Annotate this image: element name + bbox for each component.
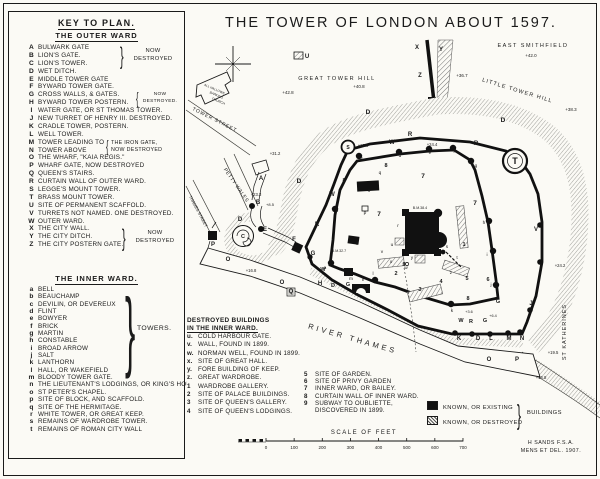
- scale-tick-label: 300: [347, 445, 355, 450]
- st-katherines-label: ST KATHERINES: [562, 304, 568, 360]
- map-label: +31.2: [270, 151, 281, 156]
- key-label: TURRETS NOT NAMED. ONE DESTROYED.: [38, 210, 174, 217]
- key-row: mBLOODY TOWER GATE.: [9, 374, 184, 381]
- destroyed-heading-1: DESTROYED BUILDINGS: [187, 317, 305, 325]
- key-label: BELL: [38, 286, 54, 293]
- key-letter: V: [25, 210, 38, 218]
- scale-tick-label: 200: [319, 445, 327, 450]
- key-row: kLANTHORN: [9, 359, 184, 366]
- brace-towers: }: [125, 286, 135, 374]
- key-row: v.WALL, FOUND IN 1899.: [187, 341, 305, 349]
- map-label: d: [399, 153, 402, 159]
- key-row: jSALT: [9, 352, 184, 359]
- key-row: sREMAINS OF WARDROBE TOWER.: [9, 418, 184, 425]
- map-label: 9: [402, 262, 405, 268]
- east-smithfield-label: EAST SMITHFIELD: [498, 43, 569, 49]
- map-label: m: [349, 277, 353, 282]
- key-label: BLOODY TOWER GATE.: [38, 374, 113, 381]
- key-label: BRICK: [38, 323, 58, 330]
- map-label: D: [297, 178, 302, 185]
- key-letter: a: [25, 286, 38, 293]
- map-label: K: [457, 336, 462, 342]
- map-label: L: [489, 336, 493, 342]
- destroyed-heading-2: IN THE INNER WARD.: [187, 325, 305, 333]
- map-label: 3: [418, 287, 421, 293]
- key-letter: f: [25, 323, 38, 330]
- brace-abc-note: NOWDESTROYED: [129, 48, 177, 63]
- brace-abc: }: [120, 44, 124, 68]
- map-label: +3.6: [465, 310, 473, 314]
- key-label: WET DITCH.: [38, 68, 77, 75]
- map-label: G: [483, 318, 487, 324]
- map-title: THE TOWER OF LONDON ABOUT 1597.: [225, 15, 557, 31]
- key-label: DEVILIN, OR DEVEREUX: [38, 301, 116, 308]
- map-label: 8: [342, 178, 345, 184]
- map-label: 1: [462, 242, 465, 248]
- map-label: +42.8: [282, 90, 294, 95]
- key-label: THE CITY POSTERN GATE.: [38, 241, 123, 248]
- key-label: REMAINS OF WARDROBE TOWER.: [38, 418, 148, 425]
- key-label: SITE OF BLOCK, AND SCAFFOLD.: [38, 396, 145, 403]
- map-label: B.M.32.7: [332, 249, 346, 253]
- key-row: y.FORE BUILDING OF KEEP.: [187, 366, 305, 374]
- city-wall: [427, 40, 434, 102]
- map-label: +36.7: [456, 73, 468, 78]
- key-label: CONSTABLE: [38, 337, 77, 344]
- key-letter: e: [25, 315, 38, 322]
- map-label: G: [496, 299, 500, 305]
- map-label: X: [415, 45, 419, 51]
- key-row: lHALL, OR WAKEFIELD: [9, 367, 184, 374]
- key-label: THE LIEUTENANT'S LODGINGS, OR KING'S HOU…: [38, 381, 200, 388]
- map-label: 8: [466, 296, 469, 302]
- petty-wales-label: PETTY WALES: [222, 167, 250, 204]
- key-letter: W: [25, 218, 38, 226]
- brace-mn: {: [106, 139, 109, 156]
- key-row: WOUTER WARD.: [9, 218, 184, 226]
- key-label: LANTHORN: [38, 359, 74, 366]
- map-label: 2: [394, 271, 397, 277]
- signature: H SANDS F.S.A. MENS ET DEL. 1907.: [503, 439, 599, 455]
- scale-tick-label: 500: [403, 445, 411, 450]
- key-label: THE CITY WALL.: [38, 225, 90, 232]
- key-letter: D: [25, 68, 38, 76]
- key-label: HALL, OR WAKEFIELD: [38, 367, 108, 374]
- map-label: W: [458, 318, 464, 324]
- key-letter: X: [25, 225, 38, 233]
- key-row: bBEAUCHAMP: [9, 293, 184, 300]
- key-label: REMAINS OF ROMAN CITY WALL: [38, 426, 142, 433]
- map-label: 7: [421, 173, 425, 180]
- map-label: 8: [384, 163, 387, 169]
- key-letter: s: [25, 418, 38, 425]
- key-letter: C: [25, 60, 38, 68]
- key-letter: T: [25, 194, 38, 202]
- map-label: O: [487, 357, 492, 363]
- key-label: BYWARD TOWER GATE.: [38, 83, 114, 90]
- key-letter: r: [25, 411, 38, 418]
- map-label: O: [280, 280, 285, 286]
- key-label: LEGGE'S MOUNT TOWER.: [38, 186, 121, 193]
- byward-gate: [291, 242, 303, 254]
- map-label: b: [336, 208, 339, 214]
- key-row: KCRADLE TOWER, POSTERN.: [9, 123, 184, 131]
- key-label: WATER GATE, OR ST THOMAS TOWER.: [38, 107, 163, 114]
- key-letter: 7: [304, 385, 315, 392]
- key-row: EMIDDLE TOWER GATE: [9, 76, 184, 84]
- key-label: LION'S TOWER.: [38, 60, 87, 67]
- key-label: SALT: [38, 352, 54, 359]
- key-letter: N: [25, 147, 38, 155]
- key-row: USITE OF PERMANENT SCAFFOLD.: [9, 202, 184, 210]
- key-label: NEW TURRET OF HENRY III. DESTROYED.: [38, 115, 172, 122]
- scale-tick-label: 600: [431, 445, 439, 450]
- key-label: LION'S GATE.: [38, 52, 81, 59]
- key-row: LWELL TOWER.: [9, 131, 184, 139]
- map-label: D: [366, 109, 371, 116]
- map-label: j: [489, 282, 491, 288]
- thames-street-label: THAMES STREET: [188, 195, 209, 229]
- map-label: o: [368, 189, 371, 194]
- map-label: 7: [473, 200, 477, 207]
- brace-xyz-note: NOWDESTROYED: [131, 230, 179, 245]
- map-label: R: [315, 222, 320, 228]
- key-letter: o: [25, 389, 38, 396]
- key-letter: U: [25, 202, 38, 210]
- key-row: 8CURTAIN WALL OF INNER WARD.: [304, 393, 454, 400]
- key-letter: Z: [25, 241, 38, 249]
- key-row: pSITE OF BLOCK, AND SCAFFOLD.: [9, 396, 184, 403]
- key-letter: K: [25, 123, 38, 131]
- map-label: h: [483, 220, 486, 226]
- key-label: THE WHARF, "KAIA REGIS.": [38, 154, 125, 161]
- key-row: x.SITE OF GREAT HALL.: [187, 358, 305, 366]
- key-label: COLD HARBOUR GATE.: [198, 333, 271, 340]
- key-row: TBRASS MOUNT TOWER.: [9, 194, 184, 202]
- key-label: INNER WARD, OR BAILEY.: [315, 385, 396, 392]
- key-label: WALL, FOUND IN 1899.: [198, 341, 269, 348]
- key-row: w.NORMAN WELL, FOUND IN 1899.: [187, 350, 305, 358]
- key-letter: b: [25, 293, 38, 300]
- map-label: +16.8: [246, 268, 257, 273]
- key-label: SUBWAY TO OUBLIETTE,: [315, 400, 393, 407]
- inner-ward-list: aBELLbBEAUCHAMPcDEVILIN, OR DEVEREUXdFLI…: [9, 286, 184, 433]
- key-letter: m: [25, 374, 38, 381]
- key-row: 6SITE OF PRIVY GARDEN: [304, 378, 454, 385]
- key-row: qSITE OF THE HERMITAGE.: [9, 404, 184, 411]
- key-letter: h: [25, 337, 38, 344]
- key-row: RCURTAIN WALL OF OUTER WARD.: [9, 178, 184, 186]
- map-label: g: [475, 164, 478, 169]
- key-letter: z.: [187, 374, 198, 382]
- key-row: SLEGGE'S MOUNT TOWER.: [9, 186, 184, 194]
- key-label: MIDDLE TOWER GATE: [38, 76, 109, 83]
- key-letter: d: [25, 308, 38, 315]
- key-letter: q: [25, 404, 38, 411]
- map-label: D: [476, 336, 481, 342]
- key-row: OTHE WHARF, "KAIA REGIS.": [9, 154, 184, 162]
- map-label: a: [324, 266, 327, 271]
- key-row: FBYWARD TOWER GATE.: [9, 83, 184, 91]
- scale-tick-label: 100: [290, 445, 298, 450]
- key-row: PWHARF GATE, NOW DESTROYED: [9, 162, 184, 170]
- map-label: +8.5: [266, 202, 275, 207]
- outer-ward-heading: THE OUTER WARD: [9, 31, 184, 42]
- key-row: tREMAINS OF ROMAN CITY WALL: [9, 426, 184, 433]
- key-letter: H: [25, 99, 38, 107]
- map-label: Y: [439, 47, 443, 53]
- key-label: NORMAN WELL, FOUND IN 1899.: [198, 350, 300, 357]
- key-letter: n: [25, 381, 38, 388]
- map-label: i: [486, 252, 487, 258]
- map-label: Z: [418, 73, 422, 79]
- map-label: l: [372, 271, 373, 277]
- destroyed-buildings-list-1: DESTROYED BUILDINGS IN THE INNER WARD. u…: [187, 317, 305, 416]
- key-panel: KEY TO PLAN. THE OUTER WARD ABULWARK GAT…: [8, 11, 185, 459]
- map-label: q: [379, 171, 382, 176]
- key-letter: w.: [187, 350, 198, 358]
- key-label: SITE OF QUEEN'S LODGINGS.: [198, 408, 292, 415]
- map-label: +16.8: [536, 375, 547, 380]
- key-label: BOWYER: [38, 315, 67, 322]
- key-label: FORE BUILDING OF KEEP.: [198, 366, 280, 373]
- legend-buildings-label: BUILDINGS: [527, 410, 562, 416]
- scale-tick-label: 0: [265, 445, 268, 450]
- map-label: +19.5: [548, 350, 559, 355]
- key-letter: B: [25, 52, 38, 60]
- map-label: n: [356, 242, 359, 247]
- map-label: p: [364, 211, 367, 216]
- legend-existing-label: KNOWN, OR EXISTING: [443, 405, 513, 411]
- key-row: nTHE LIEUTENANT'S LODGINGS, OR KING'S HO…: [9, 381, 184, 388]
- wharf-gate: [208, 231, 217, 240]
- map-label: 5: [465, 276, 468, 282]
- key-row: DWET DITCH.: [9, 68, 184, 76]
- water-gate: [352, 284, 370, 293]
- map-label: D: [501, 117, 506, 124]
- key-label: QUEEN'S STAIRS.: [38, 170, 95, 177]
- key-label: SITE OF GARDEN.: [315, 371, 372, 378]
- scale-tick-label: 700: [459, 445, 467, 450]
- tower-of-london-plan-page: SCALE OF FEET0100200300400500600700 THE …: [0, 0, 600, 479]
- key-row: hCONSTABLE: [9, 337, 184, 344]
- key-letter: 3: [187, 399, 198, 407]
- key-letter: p: [25, 396, 38, 403]
- key-letter: v.: [187, 341, 198, 349]
- key-letter: A: [25, 44, 38, 52]
- key-letter: 1: [187, 383, 198, 391]
- key-letter: 9: [304, 400, 315, 407]
- key-letter: c: [25, 301, 38, 308]
- key-label: MARTIN: [38, 330, 63, 337]
- key-row: QQUEEN'S STAIRS.: [9, 170, 184, 178]
- map-label: +6.4: [489, 314, 497, 318]
- key-letter: G: [25, 91, 38, 99]
- map-label: N: [520, 336, 524, 342]
- key-letter: i: [25, 345, 38, 352]
- map-label: u: [391, 243, 394, 248]
- key-row: VTURRETS NOT NAMED. ONE DESTROYED.: [9, 210, 184, 218]
- great-tower-hill-label: GREAT TOWER HILL: [298, 76, 375, 82]
- key-label: DISCOVERED IN 1899.: [315, 407, 385, 414]
- key-label: CRADLE TOWER, POSTERN.: [38, 123, 129, 130]
- map-label: M: [507, 336, 512, 342]
- key-label: WARDROBE GALLERY.: [198, 383, 269, 390]
- key-letter: M: [25, 139, 38, 147]
- map-label: D: [238, 217, 243, 223]
- key-letter: j: [25, 352, 38, 359]
- map-label: +25.8: [358, 143, 369, 148]
- key-label: WHARF GATE, NOW DESTROYED: [38, 162, 144, 169]
- existing-swatch: [427, 401, 438, 410]
- key-row: 7INNER WARD, OR BAILEY.: [304, 385, 454, 392]
- key-label: BROAD ARROW: [38, 345, 88, 352]
- map-label: R: [469, 319, 473, 325]
- map-label: +42.0: [525, 53, 537, 58]
- map-label: V: [534, 227, 538, 233]
- map-label: H: [318, 281, 322, 287]
- brace-gh-note: NOWDESTROYED.: [140, 92, 180, 106]
- key-letter: E: [25, 76, 38, 84]
- key-row: aBELL: [9, 286, 184, 293]
- map-label: O: [226, 257, 231, 263]
- map-label: Q: [289, 289, 294, 295]
- map-label: C: [241, 234, 245, 240]
- key-letter: Y: [25, 233, 38, 241]
- map-label: R: [408, 132, 413, 138]
- map-label: e: [429, 151, 432, 156]
- map-label: F: [292, 237, 296, 243]
- scale-label: SCALE OF FEET: [331, 430, 397, 436]
- brace-gh: {: [136, 91, 139, 108]
- key-letter: 2: [187, 391, 198, 399]
- bloody-tower-gate: [344, 268, 353, 276]
- key-label: TOWER LEADING TO: [38, 139, 104, 146]
- key-letter: l: [25, 367, 38, 374]
- key-label: WELL TOWER.: [38, 131, 84, 138]
- key-letter: 6: [304, 378, 315, 385]
- key-row: oST PETER'S CHAPEL.: [9, 389, 184, 396]
- map-label: R: [474, 141, 479, 147]
- map-label: G: [346, 282, 350, 288]
- map-label: T: [512, 156, 518, 166]
- map-label: W: [389, 140, 395, 146]
- key-letter: Q: [25, 170, 38, 178]
- key-letter: S: [25, 186, 38, 194]
- map-label: G: [311, 251, 316, 257]
- key-label: SITE OF PRIVY GARDEN: [315, 378, 391, 385]
- map-label: B: [256, 200, 261, 206]
- key-letter: F: [25, 83, 38, 91]
- map-label: A: [259, 176, 264, 182]
- map-label: P: [515, 357, 519, 363]
- map-label: 6: [486, 277, 489, 283]
- key-row: 4SITE OF QUEEN'S LODGINGS.: [187, 408, 305, 416]
- key-row: iBROAD ARROW: [9, 345, 184, 352]
- key-letter: t: [25, 426, 38, 433]
- map-label: +24.2: [555, 263, 566, 268]
- key-label: CROSS WALLS, & GATES.: [38, 91, 120, 98]
- key-label: SITE OF PALACE BUILDINGS.: [198, 391, 290, 398]
- map-label: E: [263, 227, 267, 233]
- key-row: 1WARDROBE GALLERY.: [187, 383, 305, 391]
- key-label: BYWARD TOWER POSTERN.: [38, 99, 129, 106]
- map-label: P: [211, 242, 215, 248]
- key-label: GREAT WARDROBE.: [198, 374, 261, 381]
- key-letter: 4: [187, 408, 198, 416]
- key-letter: 5: [304, 371, 315, 378]
- key-label: SITE OF QUEEN'S GALLERY.: [198, 399, 287, 406]
- key-label: FLINT: [38, 308, 57, 315]
- towers-brace-label: TOWERS.: [137, 325, 181, 333]
- key-heading: KEY TO PLAN.: [9, 18, 184, 30]
- key-letter: I: [25, 107, 38, 115]
- key-row: rWHITE TOWER, OR GREAT KEEP.: [9, 411, 184, 418]
- map-label: J: [529, 301, 532, 307]
- key-label: TOWER ABOVE: [38, 147, 87, 154]
- map-label: +23.3: [251, 192, 262, 197]
- key-row: JNEW TURRET OF HENRY III. DESTROYED.: [9, 115, 184, 123]
- key-label: BULWARK GATE: [38, 44, 89, 51]
- key-label: CURTAIN WALL OF OUTER WARD.: [38, 178, 146, 185]
- key-letter: L: [25, 131, 38, 139]
- key-label: BEAUCHAMP: [38, 293, 80, 300]
- map-label: B.M.38.4: [413, 206, 427, 210]
- brace-xyz: }: [122, 226, 126, 250]
- map-label: U: [305, 54, 309, 60]
- permanent-scaffold-site: [294, 52, 303, 59]
- key-row: 2SITE OF PALACE BUILDINGS.: [187, 391, 305, 399]
- brace-mn-note: THE IRON GATE,NOW DESTROYED: [111, 140, 167, 154]
- key-letter: u.: [187, 333, 198, 341]
- key-letter: g: [25, 330, 38, 337]
- key-row: 5SITE OF GARDEN.: [304, 371, 454, 378]
- map-label: +24.4: [427, 142, 438, 147]
- key-letter: R: [25, 178, 38, 186]
- map-label: +38.3: [565, 107, 577, 112]
- key-letter: y.: [187, 366, 198, 374]
- key-letter: k: [25, 359, 38, 366]
- key-label: ST PETER'S CHAPEL.: [38, 389, 106, 396]
- key-label: BRASS MOUNT TOWER.: [38, 194, 114, 201]
- destroyed-swatch: [427, 416, 438, 425]
- key-row: u.COLD HARBOUR GATE.: [187, 333, 305, 341]
- key-label: SITE OF PERMANENT SCAFFOLD.: [38, 202, 146, 209]
- inner-ward-heading: THE INNER WARD.: [9, 274, 184, 285]
- key-row: dFLINT: [9, 308, 184, 315]
- legend-brace: }: [517, 402, 521, 430]
- key-letter: 8: [304, 393, 315, 400]
- key-label: SITE OF GREAT HALL.: [198, 358, 267, 365]
- map-label: +40.8: [353, 84, 365, 89]
- map-label: 7: [377, 211, 381, 218]
- map-label: W: [329, 192, 335, 198]
- key-label: OUTER WARD.: [38, 218, 85, 225]
- scale-bar: SCALE OF FEET0100200300400500600700: [238, 430, 467, 450]
- key-row: eBOWYER: [9, 315, 184, 322]
- key-row: IWATER GATE, OR ST THOMAS TOWER.: [9, 107, 184, 115]
- map-legend: KNOWN, OR EXISTING KNOWN, OR DESTROYED }…: [427, 401, 569, 433]
- key-letter: P: [25, 162, 38, 170]
- scale-tick-label: 400: [375, 445, 383, 450]
- key-letter: O: [25, 154, 38, 162]
- key-label: SITE OF THE HERMITAGE.: [38, 404, 122, 411]
- key-label: WHITE TOWER, OR GREAT KEEP.: [38, 411, 144, 418]
- key-row: 3SITE OF QUEEN'S GALLERY.: [187, 399, 305, 407]
- map-label: D: [331, 283, 335, 289]
- key-label: THE CITY DITCH.: [38, 233, 92, 240]
- key-letter: J: [25, 115, 38, 123]
